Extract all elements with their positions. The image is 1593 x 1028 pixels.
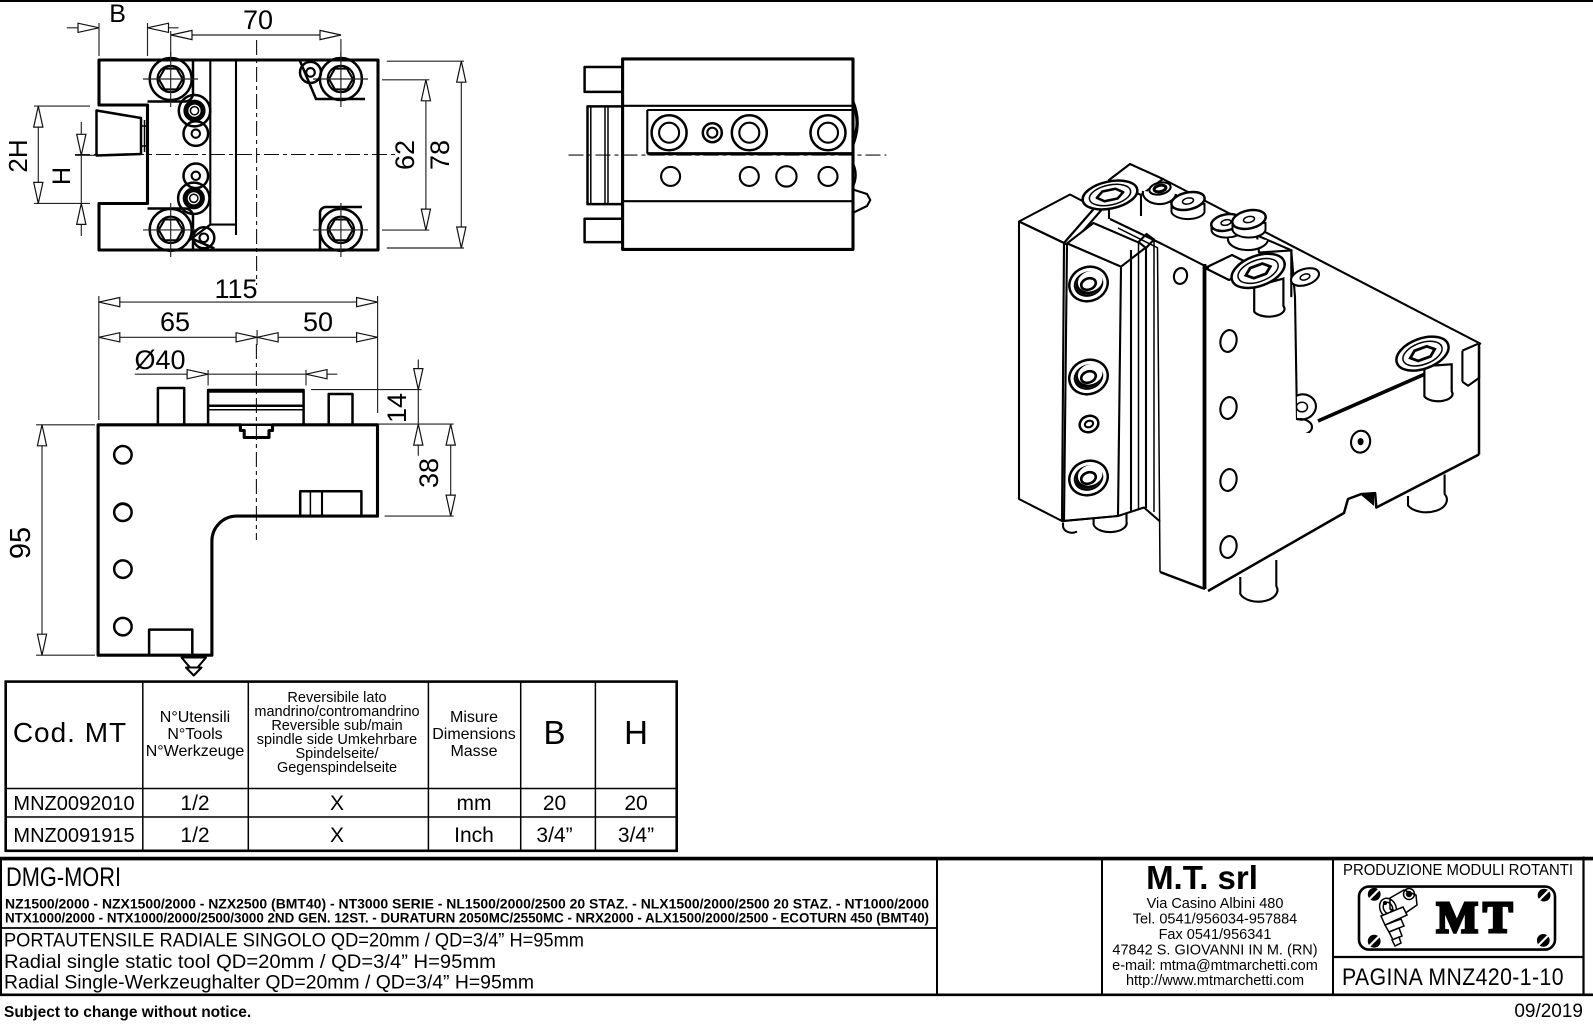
svg-text:Gegenspindelseite: Gegenspindelseite bbox=[277, 760, 397, 776]
svg-text:1/2: 1/2 bbox=[180, 792, 209, 815]
svg-text:95: 95 bbox=[5, 527, 37, 559]
svg-text:47842 S. GIOVANNI IN M. (RN): 47842 S. GIOVANNI IN M. (RN) bbox=[1112, 943, 1317, 959]
svg-text:H: H bbox=[48, 167, 76, 185]
svg-text:B: B bbox=[543, 714, 565, 751]
svg-text:62: 62 bbox=[390, 140, 420, 170]
svg-text:115: 115 bbox=[214, 274, 257, 304]
svg-text:Fax 0541/956341: Fax 0541/956341 bbox=[1159, 927, 1272, 943]
svg-text:20: 20 bbox=[543, 792, 566, 815]
svg-text:09/2019: 09/2019 bbox=[1514, 1001, 1583, 1022]
svg-text:Dimensions: Dimensions bbox=[432, 726, 516, 743]
svg-text:Radial Single-Werkzeughalter Q: Radial Single-Werkzeughalter QD=20mm / Q… bbox=[4, 973, 534, 994]
svg-text:e-mail: mtma@mtmarchetti.com: e-mail: mtma@mtmarchetti.com bbox=[1112, 958, 1318, 974]
svg-text:Tel. 0541/956034-957884: Tel. 0541/956034-957884 bbox=[1133, 912, 1297, 928]
svg-text:B: B bbox=[109, 0, 126, 28]
svg-text:3/4”: 3/4” bbox=[618, 824, 654, 847]
svg-text:2H: 2H bbox=[3, 139, 33, 172]
svg-text:3/4”: 3/4” bbox=[536, 824, 572, 847]
svg-text:50: 50 bbox=[303, 307, 333, 337]
svg-text:PAGINA MNZ420-1-10: PAGINA MNZ420-1-10 bbox=[1342, 964, 1564, 991]
svg-text:DMG-MORI: DMG-MORI bbox=[6, 862, 121, 892]
svg-text:Subject to change without noti: Subject to change without notice. bbox=[4, 1004, 251, 1021]
svg-text:38: 38 bbox=[414, 458, 444, 488]
svg-text:20: 20 bbox=[624, 792, 647, 815]
svg-text:70: 70 bbox=[243, 5, 273, 35]
svg-text:Radial single static tool QD=2: Radial single static tool QD=20mm / QD=3… bbox=[4, 952, 496, 973]
svg-text:X: X bbox=[330, 792, 344, 815]
svg-text:65: 65 bbox=[160, 307, 190, 337]
svg-text:Inch: Inch bbox=[454, 824, 494, 847]
svg-text:Masse: Masse bbox=[450, 743, 497, 760]
svg-text:1/2: 1/2 bbox=[180, 824, 209, 847]
svg-text:PRODUZIONE MODULI ROTANTI: PRODUZIONE MODULI ROTANTI bbox=[1343, 862, 1573, 879]
svg-text:Misure: Misure bbox=[450, 709, 498, 726]
svg-text:N°Tools: N°Tools bbox=[167, 726, 222, 743]
svg-text:MNZ0091915: MNZ0091915 bbox=[13, 825, 134, 847]
svg-text:Cod. MT: Cod. MT bbox=[13, 717, 127, 748]
svg-text:78: 78 bbox=[425, 140, 455, 170]
svg-text:M.T. srl: M.T. srl bbox=[1146, 859, 1258, 896]
svg-text:H: H bbox=[624, 714, 648, 751]
svg-text:14: 14 bbox=[382, 393, 412, 423]
svg-text:MT: MT bbox=[1437, 893, 1518, 942]
svg-text:Ø40: Ø40 bbox=[134, 345, 185, 375]
svg-text:http://www.mtmarchetti.com: http://www.mtmarchetti.com bbox=[1126, 973, 1304, 989]
svg-text:PORTAUTENSILE RADIALE SINGOLO: PORTAUTENSILE RADIALE SINGOLO QD=20mm / … bbox=[4, 931, 584, 952]
svg-text:Via Casino Albini 480: Via Casino Albini 480 bbox=[1147, 896, 1284, 912]
svg-text:N°Werkzeuge: N°Werkzeuge bbox=[146, 743, 245, 760]
svg-text:X: X bbox=[330, 824, 344, 847]
svg-text:MNZ0092010: MNZ0092010 bbox=[13, 793, 134, 815]
svg-text:N°Utensili: N°Utensili bbox=[160, 709, 230, 726]
svg-text:NTX1000/2000 - NTX1000/2000/25: NTX1000/2000 - NTX1000/2000/2500/3000 2N… bbox=[5, 911, 929, 927]
svg-text:mm: mm bbox=[457, 792, 492, 815]
